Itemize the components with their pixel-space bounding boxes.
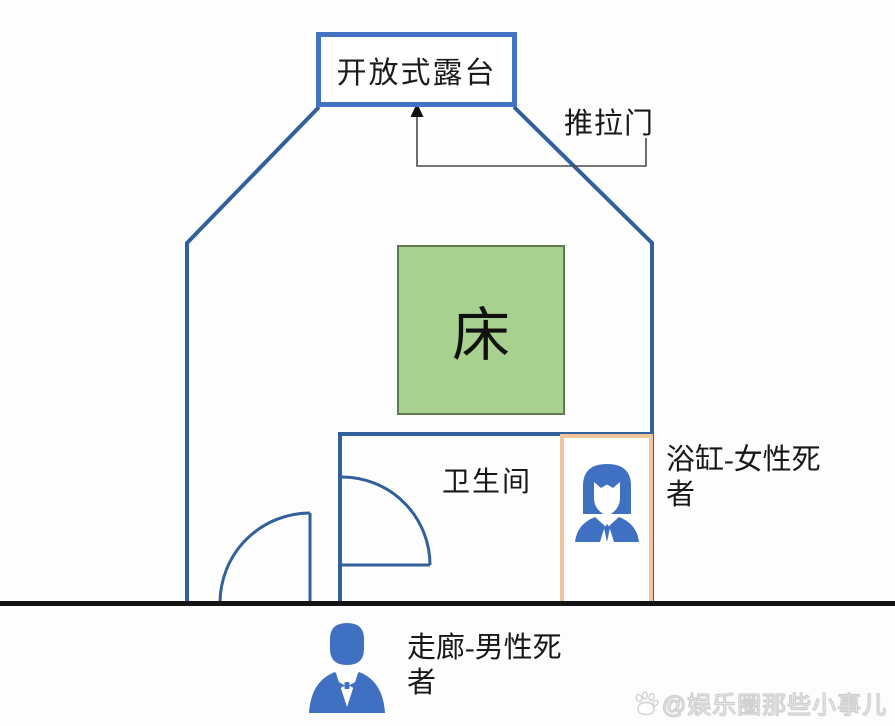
bed-box: 床 [397, 245, 565, 415]
room-wall-left [187, 107, 319, 604]
entrance-door-arc [220, 513, 310, 603]
corridor-floor-line [0, 601, 895, 606]
bathtub-victim-label: 浴缸-女性死者 [666, 443, 838, 514]
terrace-label: 开放式露台 [337, 48, 497, 92]
baidu-paw-icon [633, 690, 659, 716]
terrace-box: 开放式露台 [316, 32, 517, 107]
male-person-icon [304, 619, 390, 713]
bathroom-door-arc [342, 477, 430, 565]
watermark: @娱乐圈那些小事儿 [633, 685, 887, 720]
bed-label: 床 [452, 288, 510, 372]
floor-plan-diagram: 开放式露台 床 推拉门 卫生间 浴缸-女性死者 走廊-男性死者 [0, 0, 895, 726]
sliding-door-label: 推拉门 [564, 100, 654, 142]
female-person-icon [573, 458, 641, 542]
watermark-text: @娱乐圈那些小事儿 [662, 685, 887, 720]
bathroom-label: 卫生间 [442, 460, 532, 500]
corridor-victim-label: 走廊-男性死者 [407, 631, 583, 702]
